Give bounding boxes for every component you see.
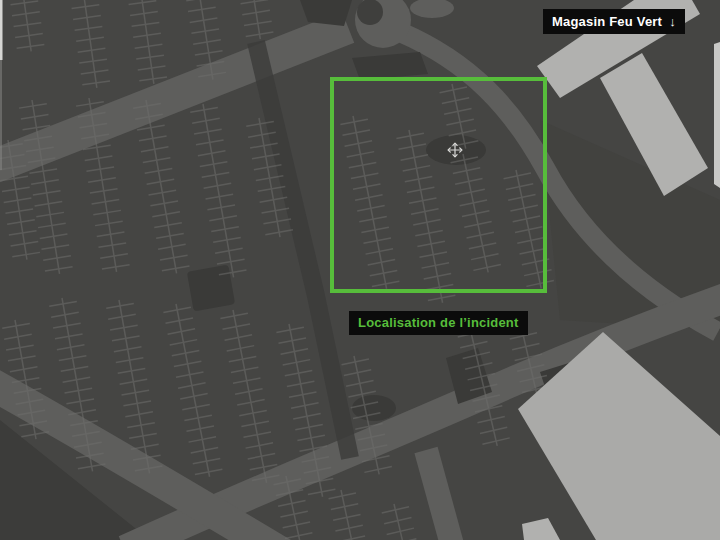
arrow-down-icon: ↓: [669, 14, 676, 29]
roundabout-island: [357, 0, 383, 25]
incident-map-view: Localisation de l’incident Magasin Feu V…: [0, 0, 720, 540]
poi-label-text: Magasin Feu Vert: [552, 14, 662, 29]
map-edge-sliver-faint: [0, 60, 2, 170]
map-edge-sliver: [0, 0, 3, 60]
incident-highlight-box: [330, 77, 547, 293]
building-edge-strip: [714, 42, 720, 188]
poi-label[interactable]: Magasin Feu Vert ↓: [543, 9, 685, 34]
incident-label: Localisation de l’incident: [349, 311, 528, 335]
